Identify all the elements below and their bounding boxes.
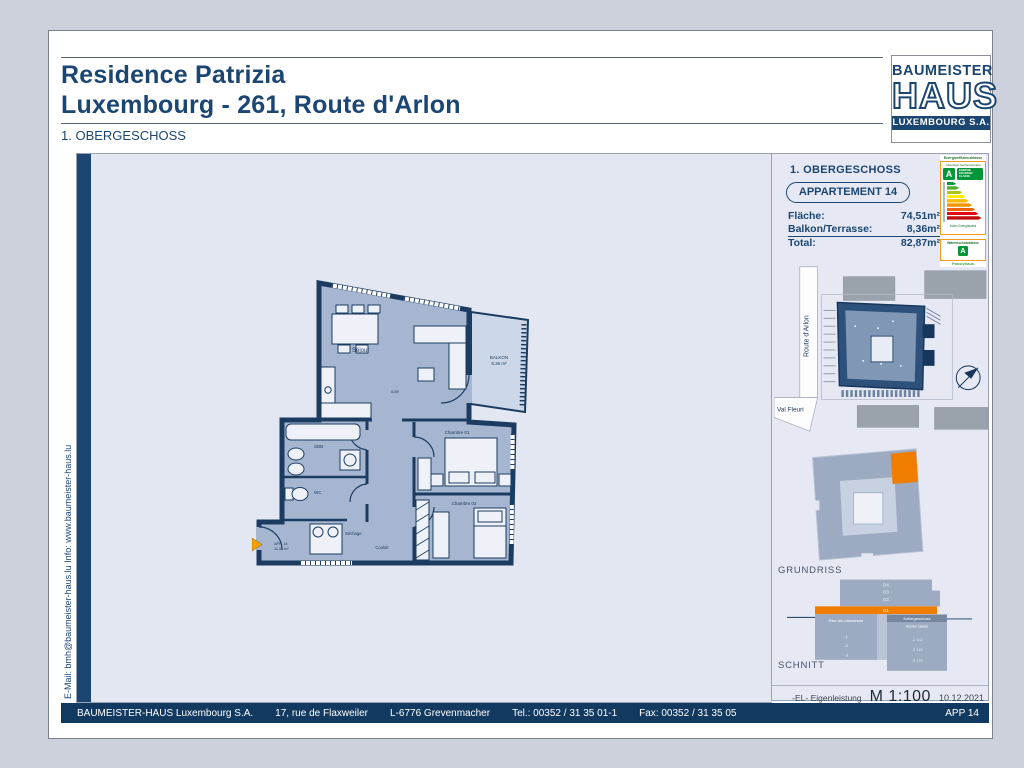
- row-value: 74,51m²: [901, 210, 940, 223]
- energy-bar: [947, 191, 962, 194]
- label-chambre1: Chambre 01: [445, 430, 470, 435]
- label-couloir: Couloir: [375, 545, 389, 550]
- energy-bar: [947, 208, 975, 211]
- energy-label: Energieeffizienzklasse zukünftiger Neuba…: [940, 155, 986, 267]
- landscape-hatch: [927, 308, 941, 324]
- energy-footer: Index Energiepass: [941, 224, 985, 228]
- schnitt-label: SCHNITT: [778, 660, 825, 671]
- footer-company: BAUMEISTER-HAUS Luxembourg S.A.: [77, 708, 253, 719]
- page-title: Residence Patrizia Luxembourg - 261, Rou…: [61, 60, 461, 120]
- date-label: 10.12.2021: [939, 693, 984, 703]
- label-balkon: BALKON: [490, 355, 508, 360]
- section-right-block: [887, 614, 947, 671]
- label-sejour: Séjour: [352, 348, 369, 354]
- svg-text:04: 04: [883, 583, 889, 588]
- heat-protection-badge: A: [958, 246, 968, 256]
- footer-tel: Tel.: 00352 / 31 35 01-1: [512, 708, 617, 719]
- footer-sheet-number: APP 14: [945, 708, 979, 719]
- section-step: [932, 591, 940, 607]
- footer-address: 17, rue de Flaxweiler: [275, 708, 368, 719]
- panel-floor-title: 1. OBERGESCHOSS: [790, 164, 901, 176]
- section-core: [877, 614, 887, 660]
- energy-subtitle: zukünftiger Neubaustandard: [941, 163, 985, 167]
- street-label-route-arlon: Route d'Arlon: [804, 315, 811, 357]
- grundriss-keyplan: [792, 442, 960, 564]
- section-right-title2: Accès caves: [906, 625, 929, 628]
- footer-city: L-6776 Grevenmacher: [390, 708, 490, 719]
- energy-class-caption: ENERGIE EFFIZIENZ KLASSE: [957, 168, 983, 180]
- keyplan-notch: [861, 553, 873, 560]
- baumeister-haus-logo: BAUMEISTER HAUS LUXEMBOURG S.A.: [891, 55, 991, 143]
- label-balkon-area: 8,36 m²: [491, 361, 507, 366]
- keyplan-notch: [813, 501, 820, 511]
- header-rule-top: [61, 57, 883, 58]
- heat-protection-box: Wärmeschutzklasse A: [940, 239, 986, 261]
- eigenleistung-note: -EL- Eigenleistung: [792, 693, 861, 703]
- building-annex: [923, 324, 935, 338]
- keyplan-core: [854, 493, 883, 524]
- label-chambre2: Chambre 02: [452, 501, 477, 506]
- label-entrance2: 11,01 m²: [274, 547, 289, 551]
- label-sdb: SDB: [314, 444, 323, 449]
- energy-bar: [947, 195, 966, 198]
- row-label: Fläche:: [788, 210, 825, 223]
- label-entrance1: APP. 14: [274, 542, 287, 546]
- energy-title: Energieeffizienzklasse: [940, 156, 986, 160]
- table-row: Fläche: 74,51m²: [788, 210, 940, 223]
- apartment-badge: APPARTEMENT 14: [786, 182, 910, 203]
- row-label: Total:: [788, 237, 816, 250]
- section-highlight-floor: [815, 606, 937, 614]
- svg-text:-3: -3: [844, 653, 849, 657]
- footer-fax: Fax: 00352 / 31 35 05: [639, 708, 736, 719]
- floor-label: 1. OBERGESCHOSS: [61, 128, 186, 143]
- area-table: Fläche: 74,51m² Balkon/Terrasse: 8,36m² …: [788, 210, 940, 250]
- svg-text:01: 01: [883, 609, 889, 614]
- row-value: 82,87m²: [901, 237, 940, 250]
- grundriss-label: GRUNDRISS: [778, 565, 842, 576]
- energy-scale-box: zukünftiger Neubaustandard A ENERGIE EFF…: [940, 161, 986, 235]
- header-rule-bottom: [61, 123, 883, 124]
- energy-axis: [943, 182, 945, 222]
- svg-text:02: 02: [883, 597, 889, 602]
- row-value: 8,36m²: [907, 223, 940, 236]
- energy-bar: [947, 182, 956, 185]
- energy-class-row: A ENERGIE EFFIZIENZ KLASSE: [943, 168, 983, 180]
- parking-hatch: [824, 310, 836, 381]
- energy-class-badge: A: [943, 168, 955, 180]
- row-label: Balkon/Terrasse:: [788, 223, 872, 236]
- courtyard: [871, 336, 893, 362]
- drawing-area: Séjour BALKON 8,36 m² SDB WC Séchage Cou…: [76, 153, 772, 703]
- svg-text:-2 1/2: -2 1/2: [911, 648, 923, 652]
- label-wc: WC: [314, 490, 322, 495]
- svg-text:-1 1/2: -1 1/2: [911, 637, 923, 641]
- street-val-fleuri: [774, 398, 818, 432]
- footer-bar: BAUMEISTER-HAUS Luxembourg S.A. 17, rue …: [61, 703, 989, 723]
- logo-line2: HAUS: [892, 79, 990, 113]
- site-plan: Route d'Arlon Val Fleuri: [774, 266, 990, 432]
- label-sechage: Séchage: [345, 531, 362, 536]
- heat-protection-title: Wärmeschutzklasse: [941, 241, 985, 245]
- logo-line3: LUXEMBOURG S.A.: [892, 116, 990, 130]
- building-annex: [923, 350, 935, 366]
- energy-bar: [947, 199, 969, 202]
- svg-text:03: 03: [883, 590, 889, 595]
- section-left-title: Rez-de-chaussée: [828, 619, 864, 623]
- label-dim: 5,89: [391, 389, 400, 394]
- annotation-divider: [772, 685, 988, 686]
- street-label-val-fleuri: Val Fleuri: [777, 406, 804, 413]
- energy-bar: [947, 186, 959, 189]
- svg-text:-3 1/2: -3 1/2: [911, 658, 923, 662]
- table-row: Total: 82,87m²: [788, 237, 940, 250]
- keyplan-highlight-unit: [891, 451, 918, 484]
- energy-bars: [941, 182, 985, 224]
- table-row: Balkon/Terrasse: 8,36m²: [788, 223, 940, 237]
- page: { "page": { "title1": "Residence Patrizi…: [0, 0, 1024, 768]
- page-title-line1: Residence Patrizia: [61, 60, 461, 90]
- energy-bar: [947, 203, 972, 206]
- energy-bar: [947, 212, 978, 215]
- left-navy-strip: [77, 154, 91, 702]
- svg-text:-2: -2: [844, 644, 849, 648]
- energy-bar: [947, 216, 982, 219]
- section-right-title1: Kellergeschoss: [904, 617, 931, 620]
- page-title-line2: Luxembourg - 261, Route d'Arlon: [61, 90, 461, 120]
- info-panel: 1. OBERGESCHOSS APPARTEMENT 14 Fläche: 7…: [771, 153, 989, 701]
- svg-text:-1: -1: [844, 634, 849, 638]
- contact-sidebar-text: E-Mail: bmh@baumeister-haus.lu Info: www…: [63, 369, 73, 699]
- sheet-card: Residence Patrizia Luxembourg - 261, Rou…: [48, 30, 993, 739]
- north-arrow-icon: [956, 366, 980, 390]
- floor-plan: Séjour BALKON 8,36 m² SDB WC Séchage Cou…: [252, 272, 544, 580]
